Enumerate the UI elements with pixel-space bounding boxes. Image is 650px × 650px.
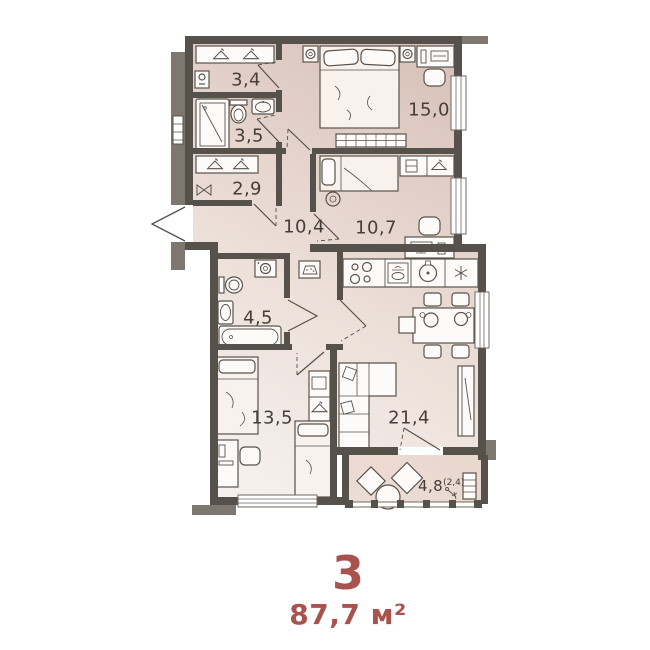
desk — [417, 46, 454, 67]
desk-chair — [240, 447, 260, 465]
room-label-shower: 3,5 — [234, 126, 264, 147]
shower-cabin — [196, 99, 229, 150]
entrance-door — [152, 207, 185, 241]
toilet — [219, 277, 243, 293]
wardrobe — [400, 156, 454, 176]
water-heater-icon — [195, 71, 209, 88]
single-bed — [320, 156, 398, 191]
dining-table — [413, 308, 474, 343]
room-label-bathroom: 4,5 — [243, 308, 273, 329]
rug — [336, 134, 406, 147]
double-bed — [320, 46, 399, 128]
room-label-closet: 2,9 — [232, 179, 262, 200]
window — [238, 495, 317, 507]
balcony-reduced-area: (2,4) — [443, 478, 464, 488]
washing-machine-icon — [255, 260, 276, 277]
total-area: 87,7 м² — [289, 599, 406, 631]
room-label-dressing: 3,4 — [231, 70, 261, 91]
room-label-bedroom2: 10,7 — [355, 218, 397, 239]
radiator — [463, 473, 476, 499]
window — [451, 178, 466, 234]
rooms-count: 3 — [289, 550, 406, 596]
room-label-balcony: 4,8(2,4) — [418, 477, 464, 495]
kitchen-counter — [343, 259, 478, 287]
dressing-wardrobe — [196, 46, 274, 63]
nightstand-lamp — [400, 46, 415, 62]
closet-wardrobe — [196, 156, 258, 173]
nightstand-lamp — [303, 46, 318, 62]
room-label-living: 21,4 — [388, 408, 430, 429]
single-bed — [295, 421, 331, 497]
desk-chair — [419, 217, 440, 235]
room-label-bedroom1: 15,0 — [408, 100, 450, 121]
desk — [216, 440, 238, 487]
floor-plan-page: 3,4 3,5 2,9 10,4 10,7 15,0 4,5 13,5 21,4… — [0, 0, 650, 650]
tv-stand — [458, 366, 474, 436]
desk-chair — [424, 69, 445, 86]
balcony-area: 4,8 — [418, 477, 443, 495]
wardrobe — [309, 371, 330, 421]
sink — [252, 99, 274, 114]
room-label-hall: 10,4 — [283, 217, 325, 238]
window — [475, 292, 489, 348]
toilet — [230, 100, 247, 123]
window — [451, 76, 466, 130]
plan-summary: 3 87,7 м² — [289, 550, 406, 631]
room-label-kids: 13,5 — [251, 408, 293, 429]
laundry-basket-icon — [299, 261, 320, 278]
utility-shaft — [173, 116, 183, 144]
sink — [218, 301, 233, 324]
